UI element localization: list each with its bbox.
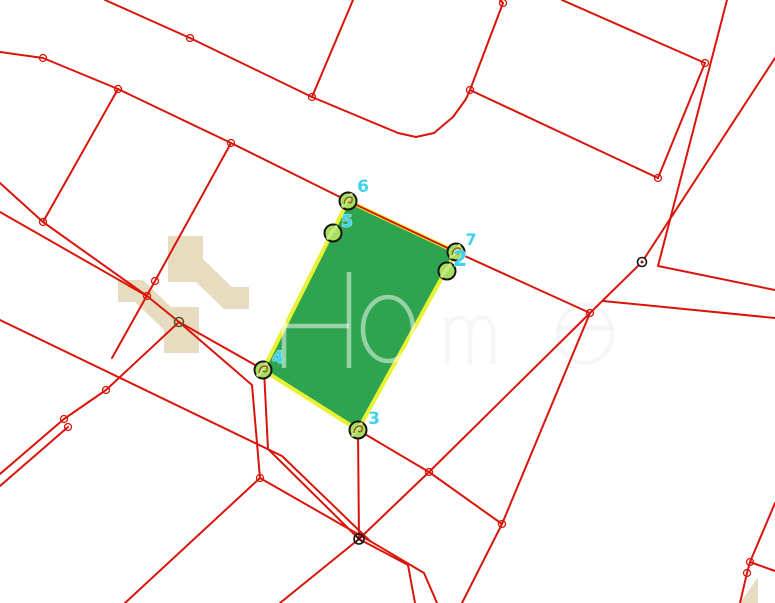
vertex-label-6: 6 [357,177,369,197]
vertex-label-5: 5 [341,212,353,232]
vertex-label-3: 3 [368,409,380,429]
dark-ring-node-dot-icon [178,321,181,324]
map-canvas[interactable]: 657243 [0,0,775,603]
vertex-marker-6[interactable] [340,193,357,210]
vertex-marker-4[interactable] [255,362,272,379]
vertex-marker-3[interactable] [350,422,367,439]
vertex-label-4: 4 [272,348,284,368]
road-v3-vertical [358,432,359,539]
map-viewport[interactable]: 657243 [0,0,775,603]
vertex-marker-5[interactable] [325,225,342,242]
control-point-dot-icon [641,261,644,264]
vertex-label-2: 2 [453,247,468,271]
